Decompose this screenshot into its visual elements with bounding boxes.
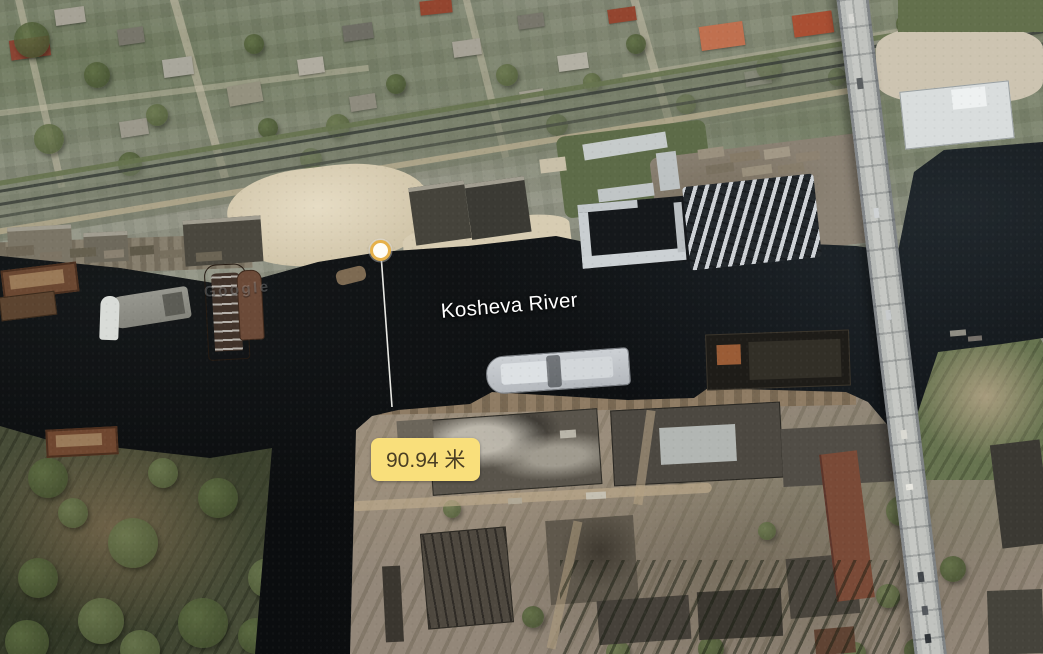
measure-line <box>0 0 1043 654</box>
satellite-map-canvas[interactable]: Google Kosheva River 90.94 米 <box>0 0 1043 654</box>
measure-distance-label: 90.94 米 <box>371 438 480 481</box>
measure-endpoint-marker[interactable] <box>370 240 391 261</box>
